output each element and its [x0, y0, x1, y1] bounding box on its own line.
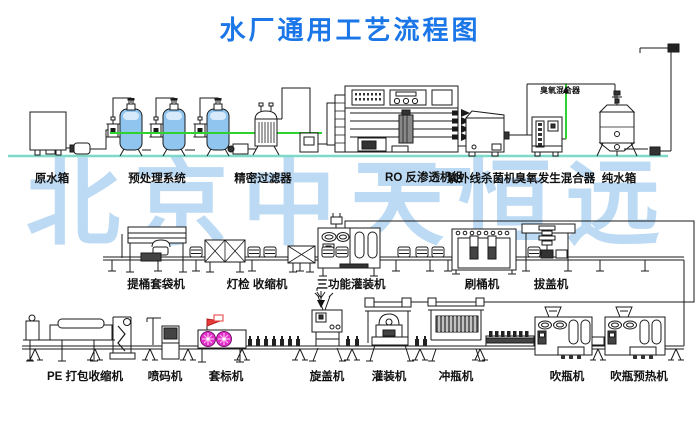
label-pe-shrinker: PE 打包收缩机 [47, 368, 123, 384]
flow-diagram-page: 北京中天恒远 水厂通用工艺流程图 [0, 0, 700, 438]
light-inspector [205, 240, 245, 272]
bottle-rinser [428, 298, 485, 361]
pure-water-tank [597, 44, 679, 156]
pe-pack-shrinker [23, 315, 135, 361]
label-capper: 旋盖机 [310, 368, 345, 384]
label-pipe-note: 臭氧混合器 [540, 85, 580, 96]
label-light-inspector: 灯检 收缩机 [227, 276, 288, 292]
label-bucket-brusher: 刷桶机 [465, 276, 500, 292]
bottle-filler [365, 298, 414, 361]
three-function-filler [318, 213, 380, 276]
bottle-blower [535, 307, 592, 359]
label-labeler: 套标机 [209, 368, 244, 384]
bucket-brusher [452, 229, 516, 274]
label-3func-filler: 三功能灌装机 [317, 276, 386, 292]
uv-sterilizer [466, 111, 532, 156]
pretreatment-system [107, 98, 323, 156]
label-ozone-mixer: 臭氧发生混合器 [515, 170, 596, 186]
label-cap-remover: 拔盖机 [534, 276, 569, 292]
label-bottle-rinser: 冲瓶机 [439, 368, 474, 384]
label-precision-filter: 精密过滤器 [234, 170, 292, 186]
raw-water-tank [30, 112, 108, 155]
label-bottle-filler: 灌装机 [372, 368, 407, 384]
label-preheater: 吹瓶预热机 [610, 368, 668, 384]
label-uv-sterilizer: 紫外线杀菌机 [447, 170, 516, 186]
shrink-wrapper [288, 246, 315, 272]
label-roller-icon [217, 332, 232, 347]
label-roller-icon [201, 332, 216, 347]
label-bucket-bagger: 提桶套袋机 [127, 276, 185, 292]
label-pure-water-tank: 纯水箱 [602, 170, 637, 186]
bucket-bagger [122, 227, 187, 272]
cap-remover [522, 224, 575, 271]
label-raw-water-tank: 原水箱 [35, 170, 70, 186]
bottle-preheater [605, 307, 665, 359]
capper [309, 288, 346, 361]
label-pretreatment: 预处理系统 [128, 170, 186, 186]
label-bottle-blower: 吹瓶机 [550, 368, 585, 384]
label-inkjet-coder: 喷码机 [148, 368, 183, 384]
ro-unit [327, 86, 470, 152]
